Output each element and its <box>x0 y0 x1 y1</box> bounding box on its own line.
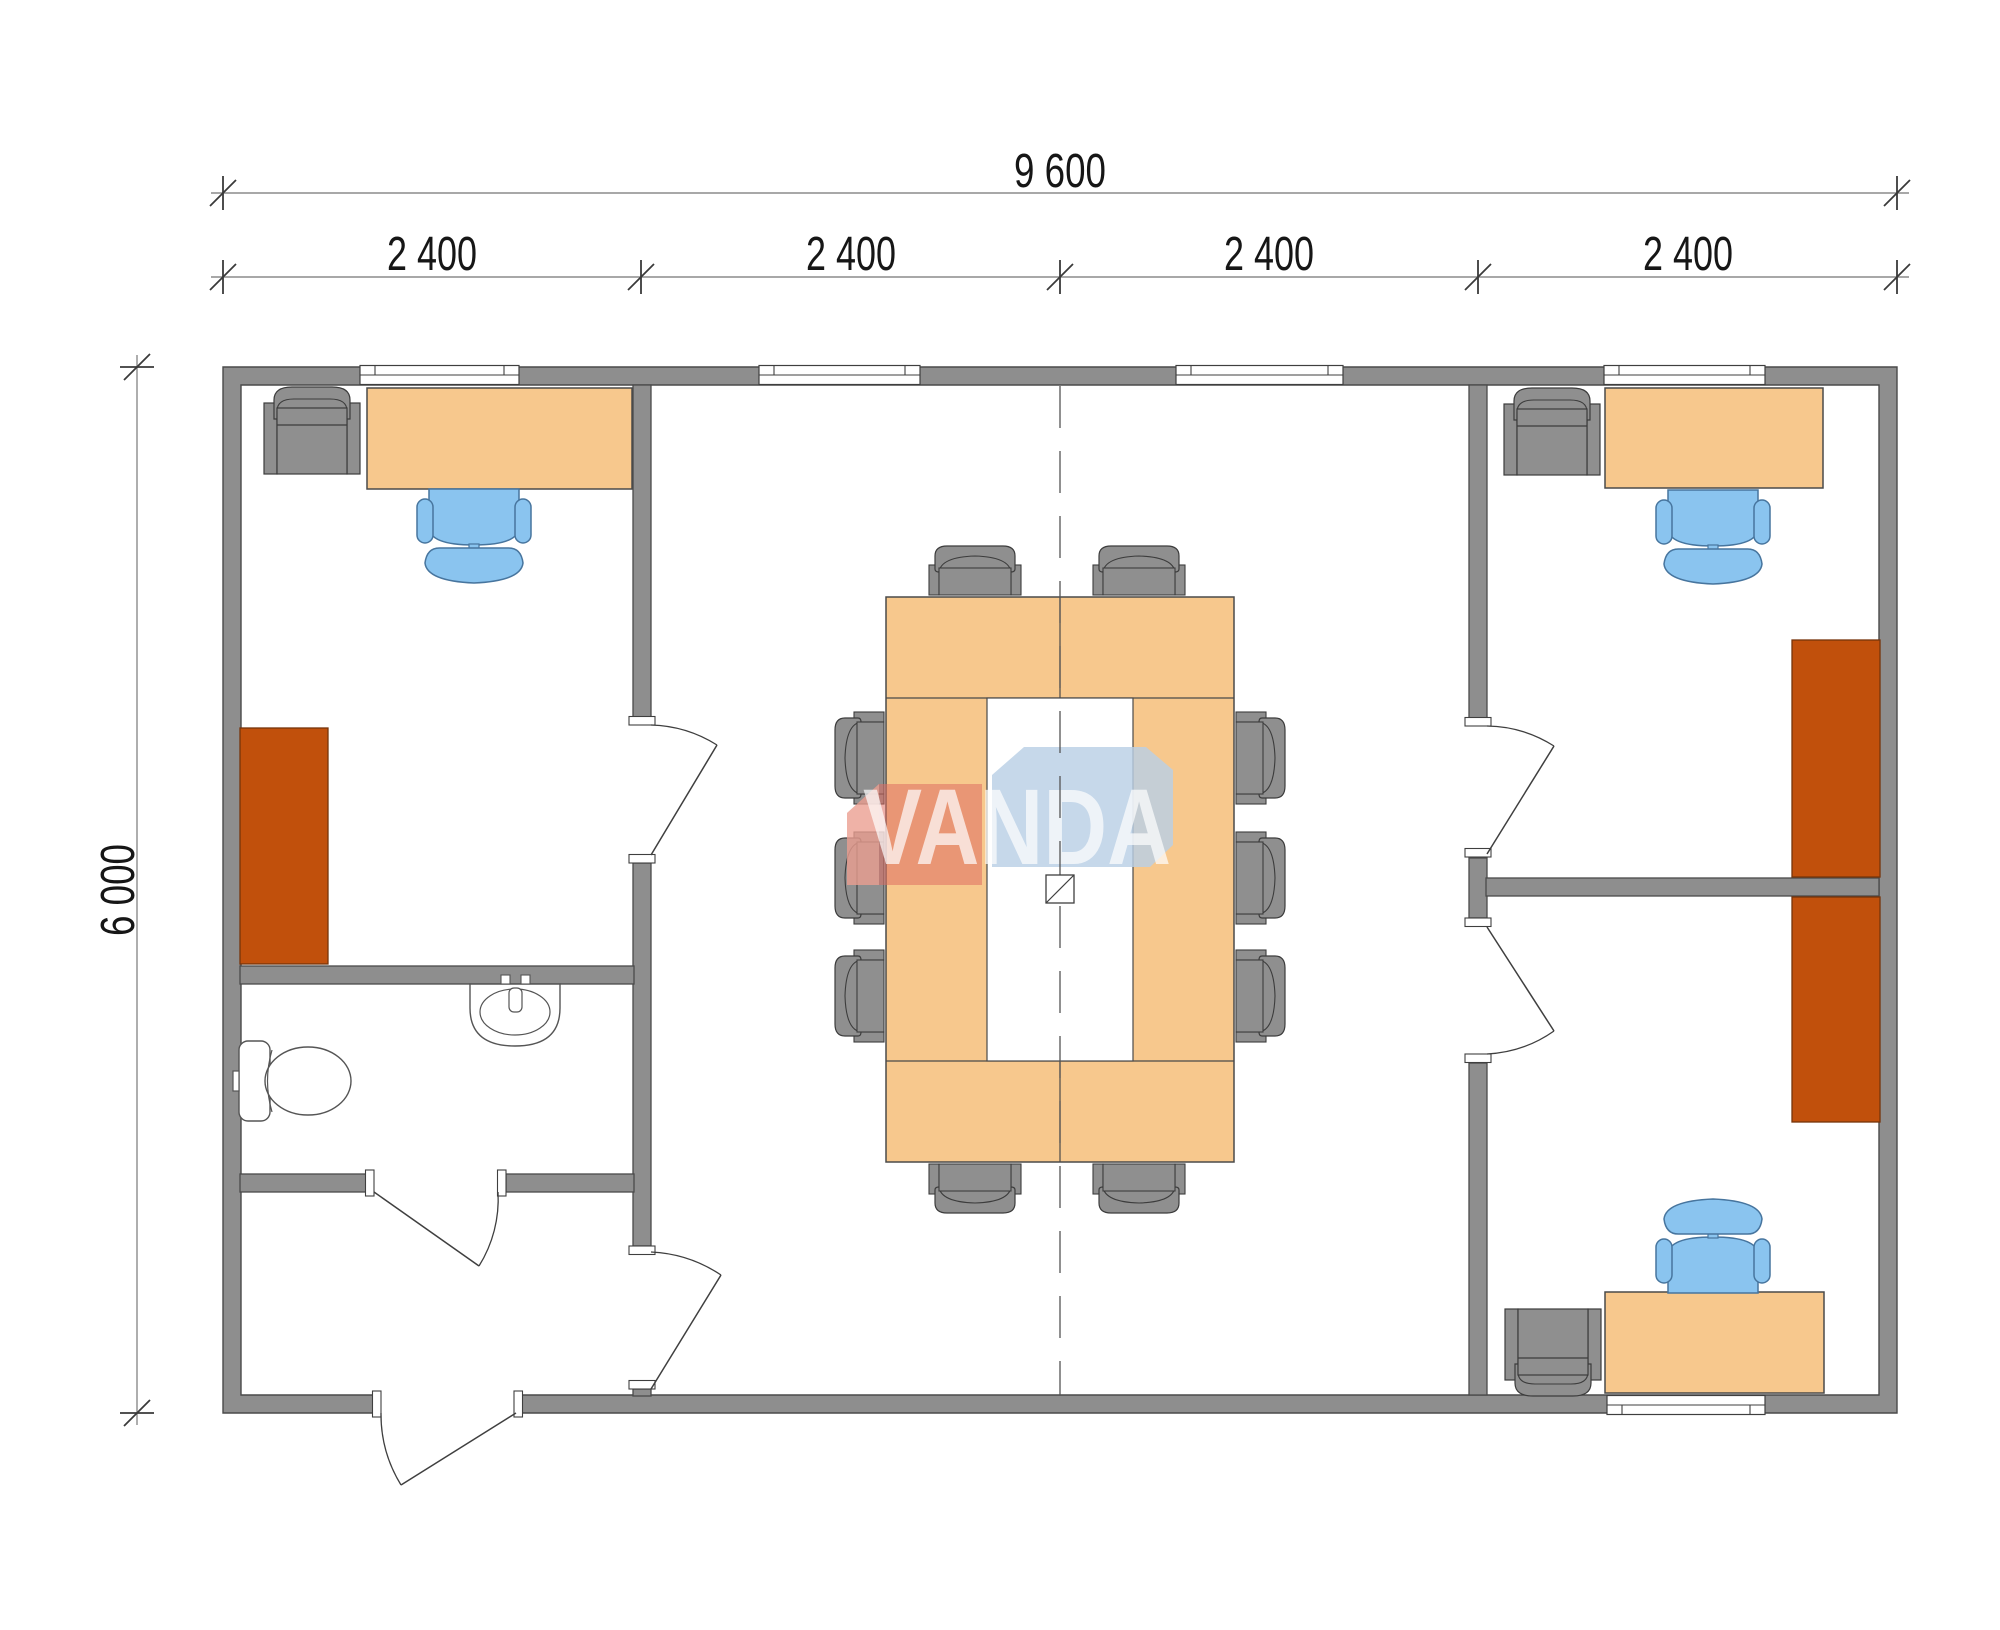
svg-text:VANDA: VANDA <box>863 766 1171 887</box>
svg-text:6 000: 6 000 <box>92 844 145 936</box>
svg-text:2 400: 2 400 <box>1643 228 1733 281</box>
svg-text:9 600: 9 600 <box>1014 145 1106 198</box>
svg-text:2 400: 2 400 <box>806 228 896 281</box>
svg-text:2 400: 2 400 <box>1224 228 1314 281</box>
svg-text:2 400: 2 400 <box>387 228 477 281</box>
